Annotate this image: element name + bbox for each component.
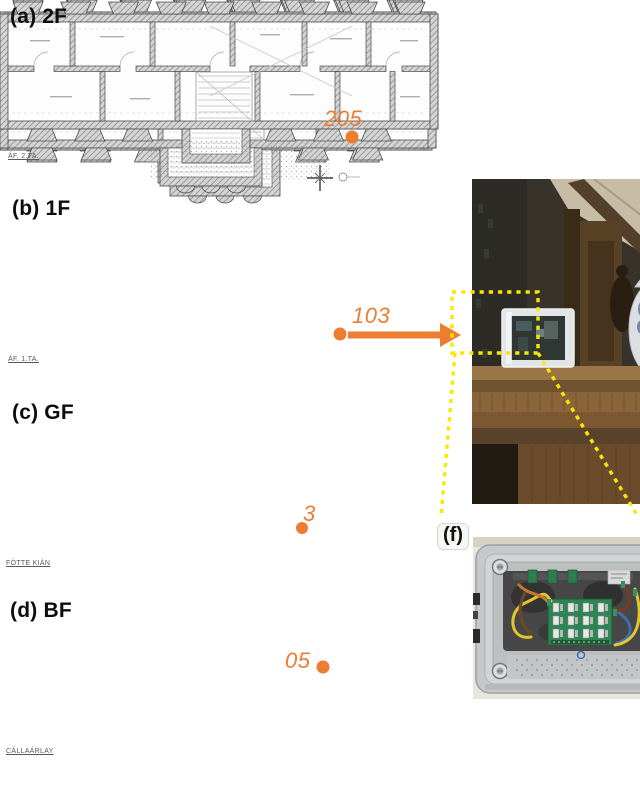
sensor-label-05: 05 — [285, 648, 310, 674]
plan-caption-1f: ÁF. 1.TA. — [8, 356, 39, 363]
plan-caption-bf: CÁLLAÁRLAY — [6, 748, 54, 755]
photo-installation-context — [472, 179, 640, 504]
panel-label-f: (f) — [437, 523, 469, 550]
panel-label-bf: (d) BF — [10, 599, 72, 623]
sensor-label-3: 3 — [303, 501, 316, 527]
plan-caption-gf: FÖTTE KIÁN — [6, 560, 50, 567]
panel-label-e: (e) — [446, 167, 472, 191]
callout-line-left — [441, 353, 455, 517]
panel-label-gf: (c) GF — [12, 401, 74, 425]
enclosure-photo-drawing — [473, 537, 640, 699]
panel-label-1f: (b) 1F — [12, 197, 70, 221]
arrow-head — [440, 323, 461, 347]
photo-sensor-enclosure-open — [473, 537, 640, 699]
cabinet-photo-drawing — [472, 179, 640, 504]
plan-caption-2f: ÁF. 2.TA. — [8, 153, 39, 160]
sensor-dot-103 — [334, 328, 347, 341]
figure-canvas: (a) 2F (b) 1F (c) GF (d) BF ÁF. 2.TA. ÁF… — [0, 0, 640, 787]
sensor-label-205: 205 — [324, 106, 362, 132]
panel-label-2f: (a) 2F — [10, 5, 67, 29]
sensor-label-103: 103 — [352, 303, 390, 329]
sensor-dot-05 — [317, 661, 330, 674]
